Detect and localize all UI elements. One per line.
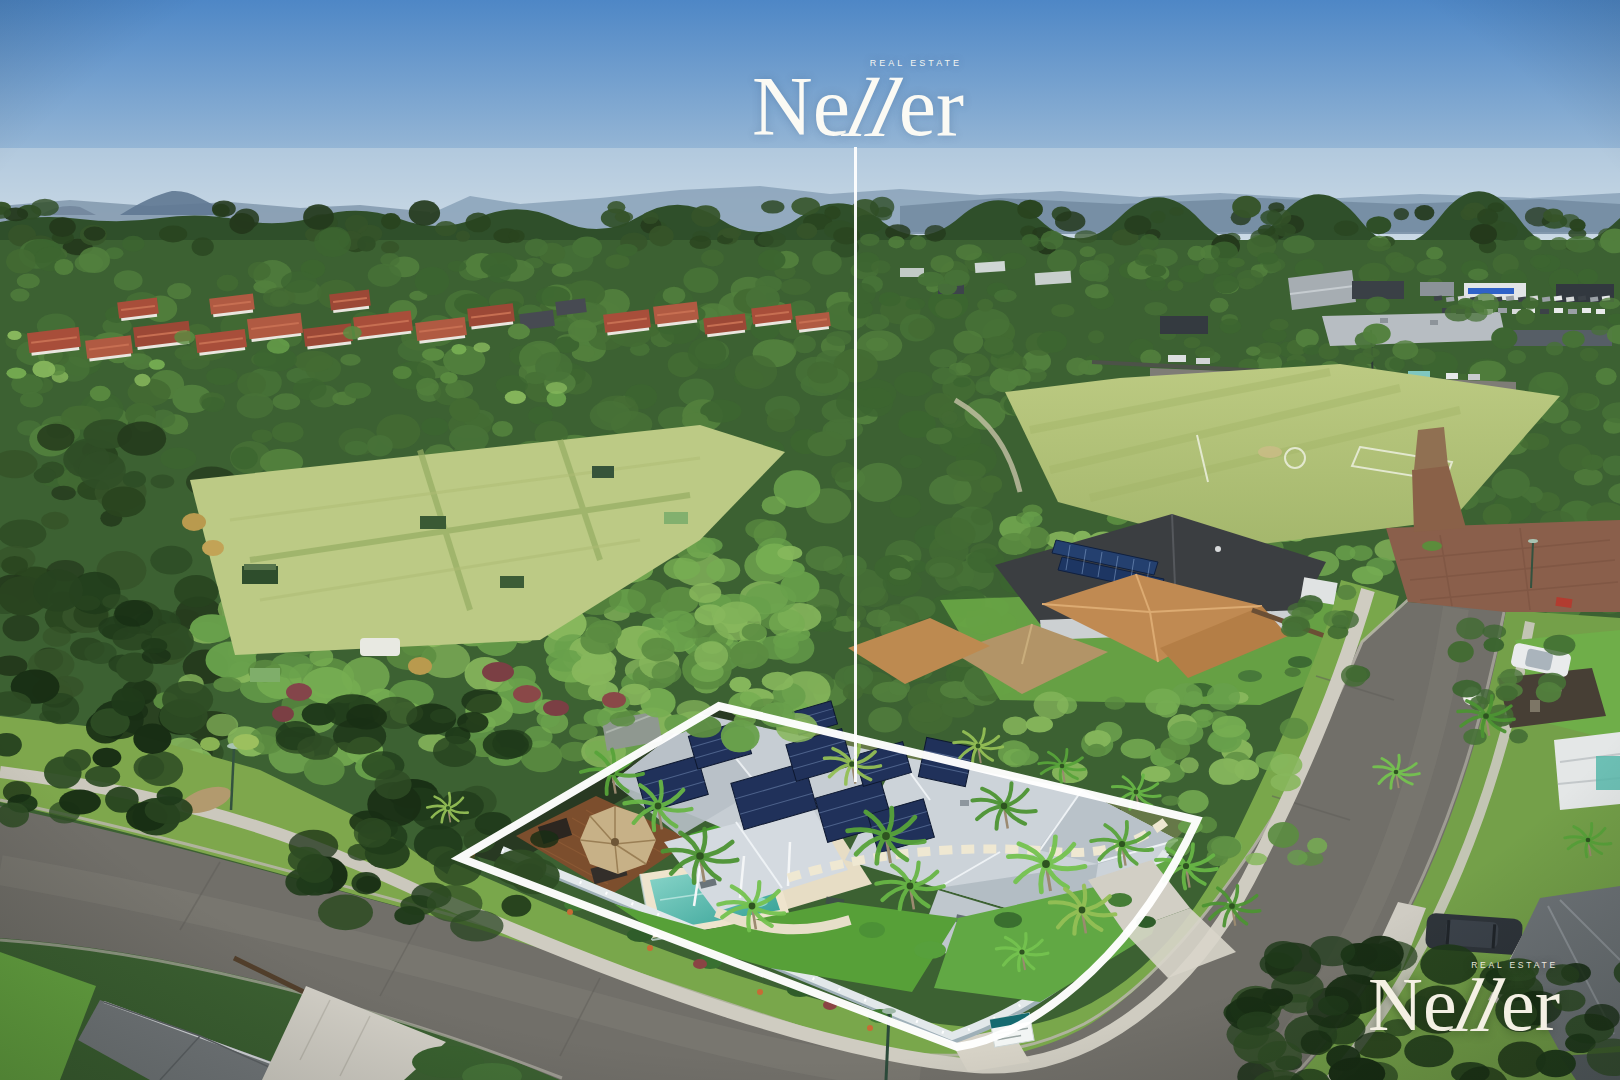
photo-scene bbox=[0, 0, 1620, 1080]
vignette bbox=[0, 0, 1620, 1080]
aerial-photo: REAL ESTATE Neller REAL ESTATE Neller bbox=[0, 0, 1620, 1080]
